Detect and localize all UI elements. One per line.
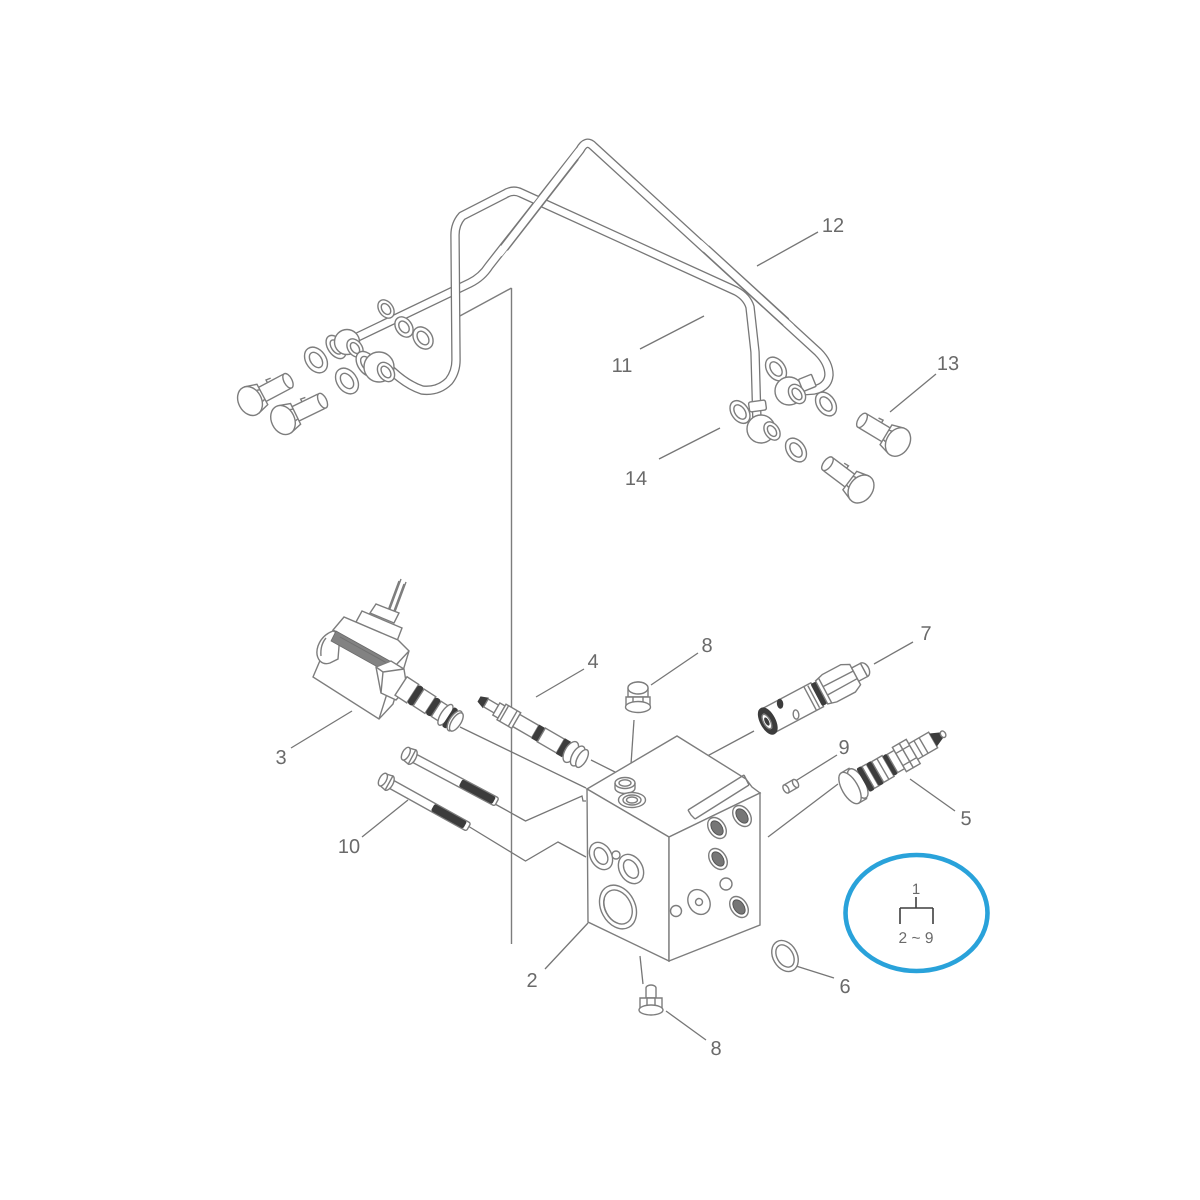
svg-text:5: 5 [960,808,971,830]
svg-text:2: 2 [526,970,537,992]
svg-text:14: 14 [625,468,647,490]
svg-text:13: 13 [937,353,959,375]
svg-text:9: 9 [838,737,849,759]
svg-text:11: 11 [612,355,633,377]
svg-text:2 ~ 9: 2 ~ 9 [899,930,934,947]
svg-text:10: 10 [338,836,360,858]
svg-text:8: 8 [701,635,712,657]
svg-text:8: 8 [710,1038,721,1060]
svg-text:6: 6 [839,976,850,998]
svg-text:1: 1 [912,881,920,898]
svg-text:7: 7 [920,623,931,645]
svg-text:12: 12 [822,215,844,237]
svg-text:3: 3 [275,747,286,769]
svg-text:4: 4 [587,651,598,673]
